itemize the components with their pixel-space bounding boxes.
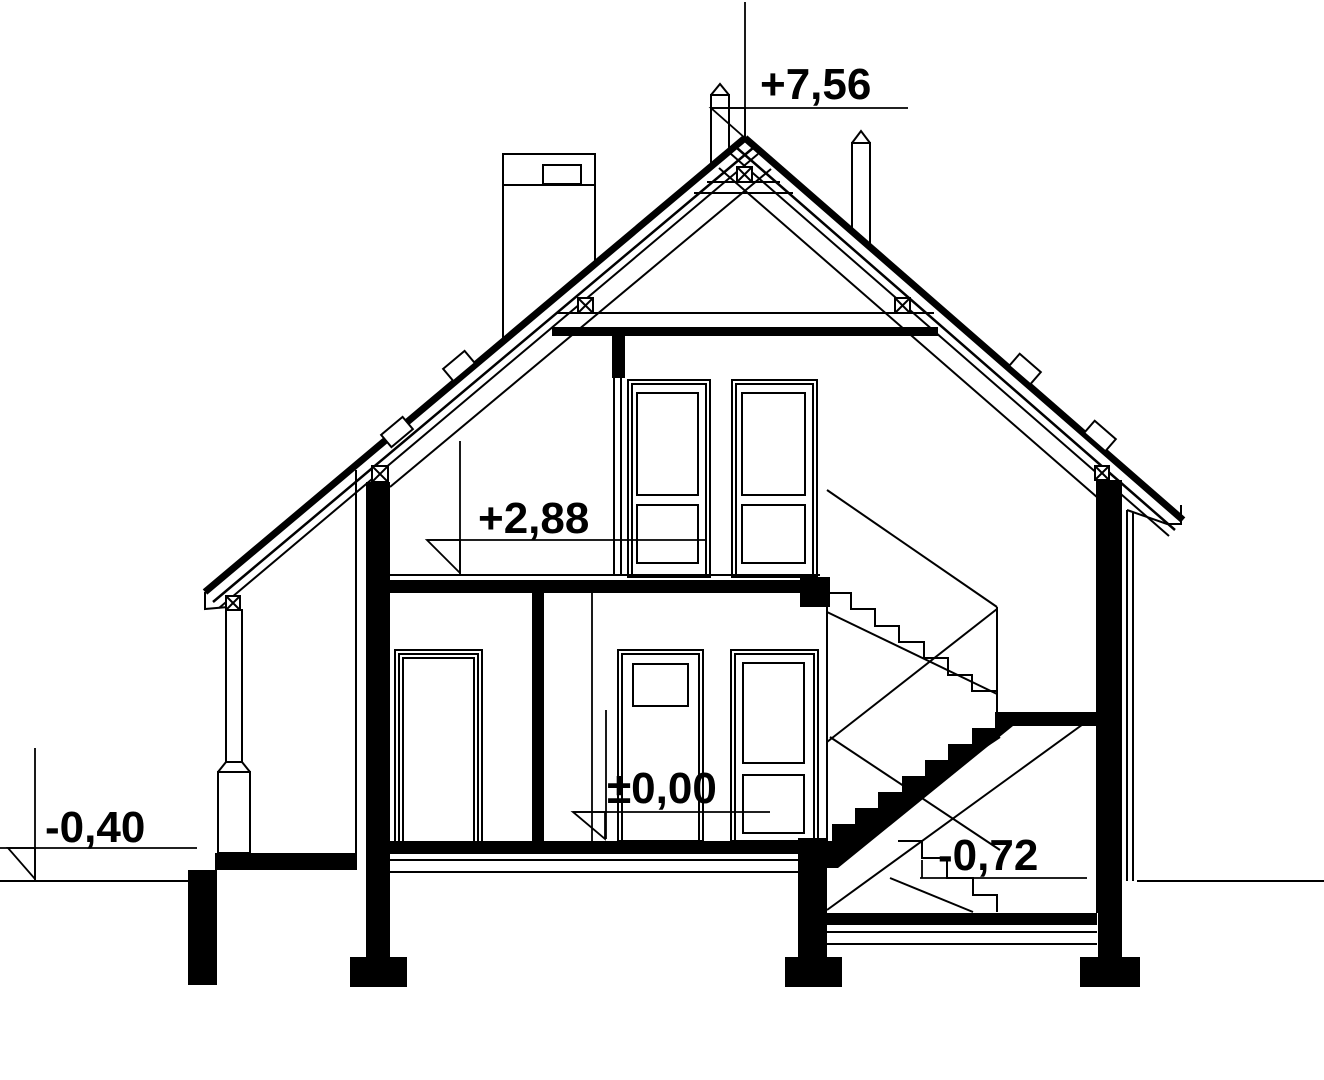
- level-label-ridge: +7,56: [760, 63, 871, 107]
- foundations: [350, 957, 1140, 987]
- upper-floor-doors: [628, 380, 817, 577]
- door-opening: [395, 650, 482, 841]
- roof-break-symbol: [443, 351, 475, 381]
- roof: [205, 138, 1183, 609]
- level-label-ground-floor: ±0,00: [607, 767, 717, 811]
- floor-slabs: [385, 575, 1097, 944]
- door-panelled: [628, 380, 710, 577]
- level-label-lower-landing: -0,72: [938, 834, 1038, 878]
- roof-break-symbol: [1084, 421, 1116, 451]
- section-linework: [0, 0, 1324, 1080]
- porch: [188, 596, 357, 985]
- door-panelled: [732, 380, 817, 577]
- architectural-section: +7,56 +2,88 ±0,00 -0,40 -0,72: [0, 0, 1324, 1080]
- roof-break-symbol: [1009, 354, 1041, 384]
- level-label-grade: -0,40: [45, 806, 145, 850]
- level-label-upper-floor: +2,88: [478, 497, 589, 541]
